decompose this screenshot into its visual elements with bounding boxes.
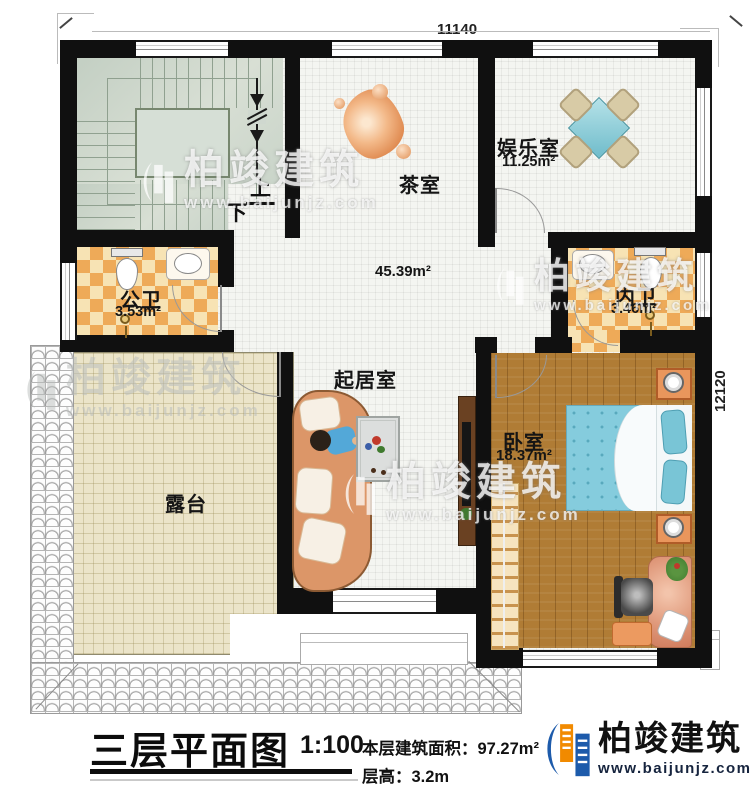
bedroom-area: 18.37m²: [496, 447, 552, 464]
floor-drain-stem-private: [650, 322, 652, 336]
sofa-cushion-2: [294, 467, 333, 515]
wall-bed-top-1: [475, 337, 497, 353]
stair-arrowhead-upper: [250, 94, 264, 107]
tea-stone-bubble-2: [396, 144, 411, 159]
window-left-publicbath: [60, 263, 77, 340]
floor-area-text: 本层建筑面积：97.27m²: [362, 735, 539, 763]
wall-bedroom-bottom-1: [476, 648, 523, 668]
desk-chair-seat: [621, 578, 653, 616]
stair-down-label: 下: [226, 197, 247, 227]
person-head: [310, 430, 331, 451]
plan-scale: 1:100: [300, 731, 364, 760]
window-top-stair: [136, 40, 228, 58]
roof-tiles-left: [30, 345, 74, 714]
floor-drain-stem-public: [125, 326, 127, 338]
loft-ladder-rail: [503, 483, 505, 648]
desk-plant: [666, 557, 688, 581]
wall-publicbath-right-upper: [218, 230, 234, 287]
company-logo: 柏竣建筑 www.baijunjz.com: [540, 719, 750, 779]
desk-stool: [612, 622, 652, 646]
wall-bedroom-bottom-2: [657, 648, 712, 668]
page-title: 三层平面图: [90, 720, 290, 775]
terrace-door-leaf: [279, 352, 281, 397]
lamp-top: [663, 372, 684, 393]
table-flowers-blue: [365, 443, 372, 450]
entertainment-area: 11.25m²: [502, 154, 555, 170]
sink-basin-public: [174, 253, 202, 274]
company-url: www.baijunjz.com: [598, 760, 750, 777]
table-dot-1: [371, 468, 376, 473]
wall-publicbath-bottom: [60, 335, 234, 352]
wall-bed-top-3: [551, 330, 568, 353]
private-bath-area: 3.46m²: [611, 301, 657, 317]
window-right-privatebath: [695, 253, 712, 317]
tv-screen: [462, 422, 471, 506]
floor-height-text: 层高：3.2m: [362, 763, 539, 789]
wall-living-bedroom: [476, 353, 491, 668]
stair-direction-line: [256, 78, 258, 178]
build-info: 本层建筑面积：97.27m² 层高：3.2m: [362, 735, 539, 789]
sofa-cushion-1: [298, 395, 342, 432]
sink-basin-private: [579, 254, 606, 274]
wall-bed-top-4: [620, 330, 712, 353]
floor-plan-page: 上 下: [0, 0, 750, 789]
wall-living-bottom-2: [436, 588, 478, 614]
leader-corner-right: [680, 28, 719, 67]
entertainment-door-leaf: [495, 188, 497, 233]
wall-stair-bath: [60, 230, 228, 247]
extension-line-top: [92, 31, 710, 32]
stair-up-label: 上: [246, 172, 275, 205]
tea-stone-bubble-3: [334, 98, 345, 109]
sofa-cushion-3: [296, 516, 348, 566]
toilet-tank-public: [111, 248, 143, 257]
window-living-bottom: [333, 588, 436, 614]
table-flowers-red: [372, 436, 381, 445]
window-right-entertainment: [695, 88, 712, 196]
bedroom-door-leaf: [495, 355, 497, 398]
desk-plant-berry: [674, 563, 680, 569]
loft-ladder: [491, 483, 519, 650]
hall-area: 45.39m²: [375, 263, 431, 280]
wall-privatebath-left: [551, 232, 568, 330]
tea-room-label: 茶室: [399, 169, 441, 198]
pillow-2: [660, 459, 688, 505]
dimension-top: 11140: [437, 21, 477, 38]
public-bath-area: 3.53m²: [115, 304, 161, 320]
toilet-tank-private: [634, 247, 666, 256]
wall-stair-tea: [285, 40, 300, 238]
window-top-entertainment: [533, 40, 658, 58]
stair-arrowhead-lower: [250, 130, 264, 143]
stair-landing: [135, 108, 230, 178]
window-top-tea: [332, 40, 442, 58]
title-underline-thick: [90, 769, 352, 774]
dimension-right: 12120: [712, 370, 729, 412]
tea-stone-bubble-1: [372, 84, 388, 100]
company-logo-icon: [540, 719, 592, 779]
pillow-1: [660, 409, 688, 455]
wall-tea-entertainment: [478, 40, 495, 247]
leader-tick-right: [729, 15, 743, 27]
lamp-bottom: [663, 517, 684, 538]
porch-step: [300, 633, 468, 665]
wall-entertainment-bottom: [548, 232, 712, 248]
leader-corner-left: [57, 13, 94, 64]
company-name: 柏竣建筑: [598, 722, 750, 756]
window-bedroom-bottom: [523, 650, 657, 668]
title-underline-thin: [90, 779, 358, 781]
living-room-label: 起居室: [334, 364, 397, 393]
wall-top-2: [228, 40, 332, 58]
table-flowers-green: [377, 446, 385, 453]
terrace-label: 露台: [165, 488, 207, 517]
roof-tiles-bottom: [30, 662, 522, 714]
publicbath-door-leaf: [220, 285, 222, 332]
table-dot-2: [381, 470, 386, 475]
